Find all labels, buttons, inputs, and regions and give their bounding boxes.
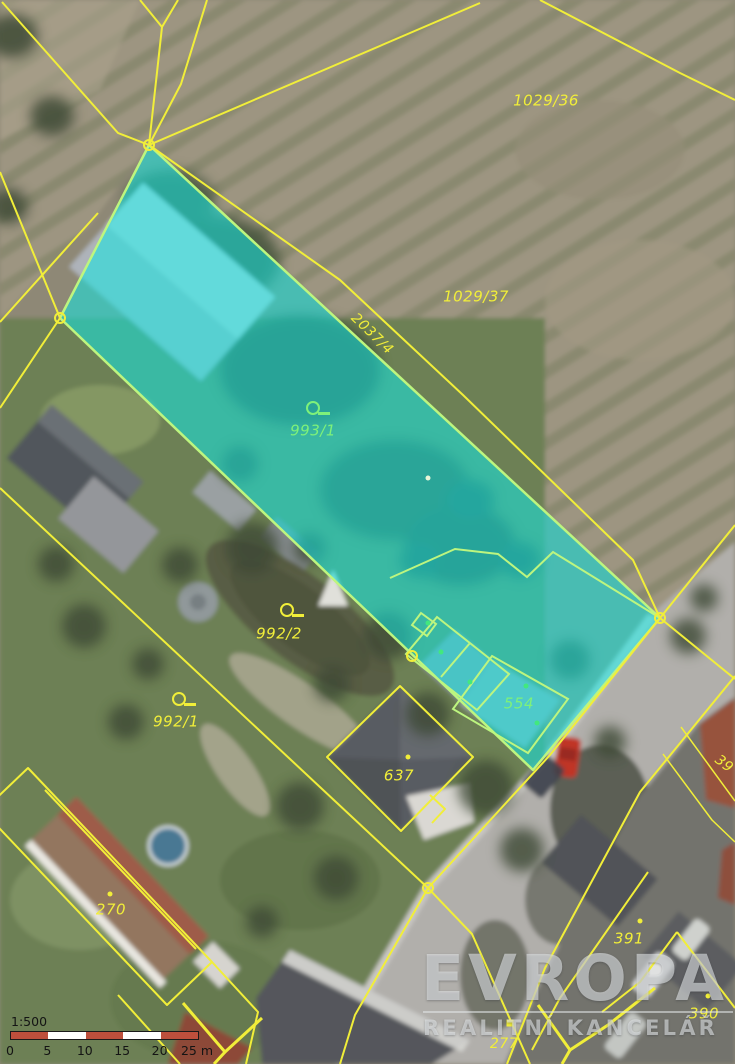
parcel-label-993-1: 993/1 [290,424,336,439]
boundary-vertex-icon [422,882,434,894]
parcel-label-270: 270 [96,903,126,918]
scale-tick-label: 25 m [181,1043,213,1058]
scale-bar-segments [10,1031,199,1040]
land-use-symbol-icon [280,603,294,617]
boundary-point-icon [468,680,473,685]
parcel-label-1029-36: 1029/36 [513,94,579,109]
watermark-subtitle: REALITNÍ KANCELÁŘ [423,1016,735,1040]
boundary-point-icon [426,476,431,481]
scale-tick-label: 20 [152,1043,168,1058]
scale-segment [48,1032,85,1039]
boundary-vertex-icon [406,650,418,662]
boundary-vertex-icon [654,612,666,624]
boundary-point-icon [439,650,444,655]
land-use-symbol-icon [306,401,320,415]
scale-ratio: 1:500 [11,1014,47,1029]
boundary-vertex-icon [143,139,155,151]
watermark: EVROPA REALITNÍ KANCELÁŘ [421,949,735,1040]
scale-tick-label: 5 [43,1043,51,1058]
land-use-symbol-icon [172,692,186,706]
scale-bar: 1:500 0510152025 m [8,1014,223,1060]
boundary-vertex-icon [54,312,66,324]
parcel-label-554: 554 [504,697,534,712]
boundary-point-icon [638,919,643,924]
scale-segment [123,1032,160,1039]
parcel-label-1029-37: 1029/37 [443,290,509,305]
boundary-point-icon [406,755,411,760]
parcel-label-992-2: 992/2 [256,627,302,642]
scale-tick-label: 0 [6,1043,14,1058]
scale-tick-label: 10 [77,1043,93,1058]
boundary-point-icon [535,721,540,726]
parcel-label-637: 637 [384,769,414,784]
watermark-title: EVROPA [421,949,735,1009]
cadastral-map-stage: 1:500 0510152025 m EVROPA REALITNÍ KANCE… [0,0,735,1064]
scale-segment [86,1032,123,1039]
boundary-point-icon [108,892,113,897]
boundary-point-icon [524,684,529,689]
scale-tick-label: 15 [114,1043,130,1058]
scale-segment [11,1032,48,1039]
parcel-label-992-1: 992/1 [153,715,199,730]
boundary-point-icon [426,621,431,626]
scale-segment [161,1032,198,1039]
